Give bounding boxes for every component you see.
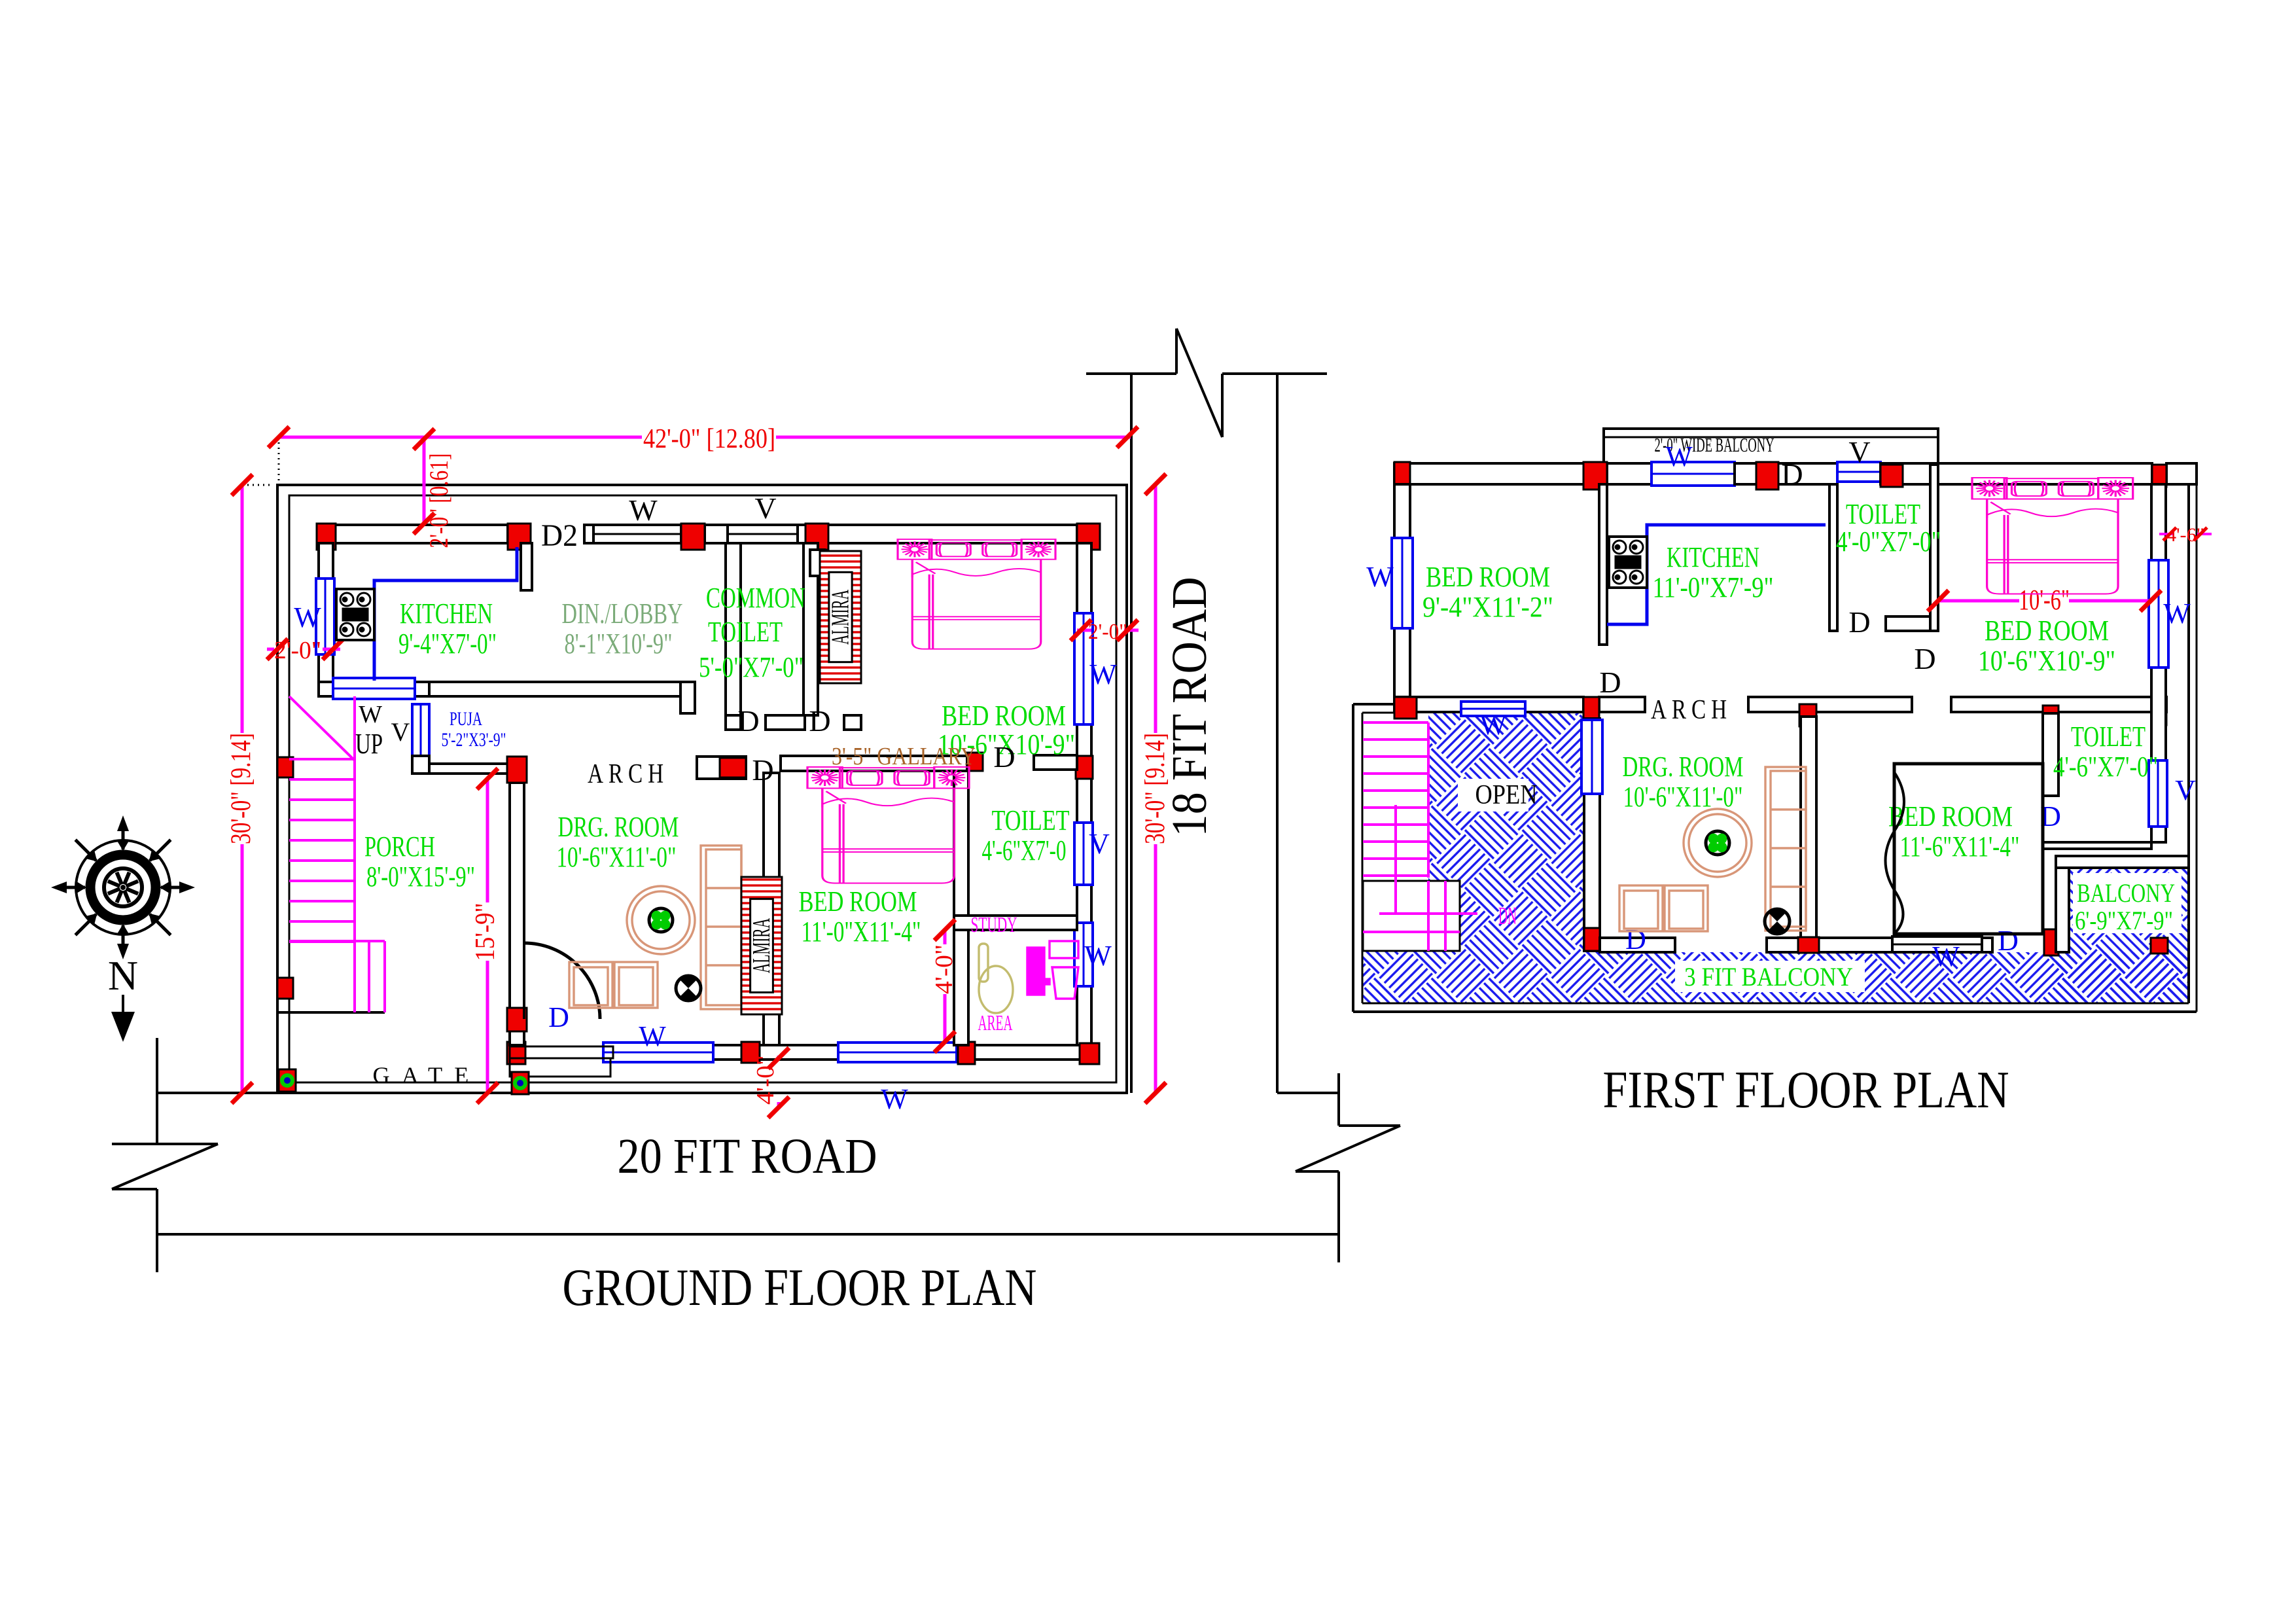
svg-text:9'-4"X7'-0": 9'-4"X7'-0" <box>398 628 497 660</box>
svg-text:4'-0": 4'-0" <box>930 944 958 994</box>
svg-text:D: D <box>993 740 1015 774</box>
svg-text:TOILET: TOILET <box>992 804 1070 836</box>
svg-text:TOILET: TOILET <box>2071 721 2146 753</box>
svg-text:W: W <box>294 601 321 633</box>
svg-text:10'-6": 10'-6" <box>2019 584 2070 616</box>
svg-text:DRG. ROOM: DRG. ROOM <box>1623 751 1744 783</box>
svg-text:KITCHEN: KITCHEN <box>1667 541 1759 573</box>
svg-text:D: D <box>1914 642 1935 675</box>
svg-text:W: W <box>1089 658 1117 690</box>
svg-text:W: W <box>639 1020 666 1052</box>
svg-text:AREA: AREA <box>978 1011 1013 1035</box>
svg-text:D: D <box>737 704 759 738</box>
svg-text:42'-0" [12.80]: 42'-0" [12.80] <box>643 424 775 454</box>
svg-text:BED ROOM: BED ROOM <box>1426 561 1550 593</box>
svg-text:2'-0" [0.61]: 2'-0" [0.61] <box>424 454 453 548</box>
svg-text:W: W <box>1932 940 1960 972</box>
svg-text:2'-0": 2'-0" <box>274 637 321 664</box>
svg-text:10'-6"X10'-9": 10'-6"X10'-9" <box>1978 645 2115 677</box>
svg-text:D: D <box>752 753 773 787</box>
svg-text:BALCONY: BALCONY <box>2077 878 2175 908</box>
svg-text:ARCH: ARCH <box>1651 695 1732 725</box>
svg-text:COMMON: COMMON <box>706 582 805 614</box>
svg-text:5'-2"X3'-9": 5'-2"X3'-9" <box>442 729 506 751</box>
svg-text:DN: DN <box>1498 902 1517 930</box>
svg-text:D: D <box>1599 666 1621 699</box>
svg-text:30'-0" [9.14]: 30'-0" [9.14] <box>226 733 256 844</box>
svg-text:4'-0"X7'-0": 4'-0"X7'-0" <box>1836 526 1941 558</box>
svg-text:D2: D2 <box>541 518 578 553</box>
svg-text:D: D <box>1998 925 2019 957</box>
svg-text:W: W <box>1084 940 1112 972</box>
svg-text:4'-6"X7'-0: 4'-6"X7'-0 <box>982 834 1067 866</box>
svg-text:W: W <box>2163 597 2191 630</box>
svg-text:UP: UP <box>355 728 383 760</box>
svg-text:2'-0": 2'-0" <box>1088 620 1127 644</box>
svg-text:4'-6"X7'-0": 4'-6"X7'-0" <box>2053 751 2158 783</box>
svg-text:9'-4"X11'-2": 9'-4"X11'-2" <box>1422 591 1553 623</box>
svg-text:TOILET: TOILET <box>708 616 783 648</box>
svg-text:D: D <box>1781 457 1803 491</box>
svg-text:W: W <box>1665 440 1693 473</box>
svg-text:3'-5" GALLARY: 3'-5" GALLARY <box>832 743 976 770</box>
svg-text:PUJA: PUJA <box>450 708 482 730</box>
svg-text:8'-0"X15'-9": 8'-0"X15'-9" <box>366 861 475 893</box>
svg-text:8'-1"X10'-9": 8'-1"X10'-9" <box>565 628 673 660</box>
svg-text:FIRST FLOOR PLAN: FIRST FLOOR PLAN <box>1603 1061 2009 1119</box>
svg-text:DIN./LOBBY: DIN./LOBBY <box>562 597 683 630</box>
svg-text:BED ROOM: BED ROOM <box>942 700 1066 732</box>
svg-text:ALMIRA: ALMIRA <box>748 918 775 973</box>
svg-text:KITCHEN: KITCHEN <box>400 597 493 630</box>
svg-text:OPEN: OPEN <box>1475 780 1538 810</box>
svg-text:20 FIT ROAD: 20 FIT ROAD <box>618 1129 877 1184</box>
svg-text:GATE: GATE <box>373 1062 481 1088</box>
svg-text:D: D <box>1848 605 1870 639</box>
svg-text:ALMIRA: ALMIRA <box>827 590 855 645</box>
svg-text:W: W <box>1479 709 1507 741</box>
svg-text:V: V <box>754 491 776 525</box>
svg-text:6'-9"X7'-9": 6'-9"X7'-9" <box>2075 906 2173 935</box>
svg-text:BED ROOM: BED ROOM <box>799 885 917 918</box>
svg-text:W: W <box>1366 561 1394 593</box>
svg-text:10'-6"X11'-0": 10'-6"X11'-0" <box>557 841 677 873</box>
svg-text:10'-6"X11'-0": 10'-6"X11'-0" <box>1623 781 1743 813</box>
svg-text:11'-6"X11'-4": 11'-6"X11'-4" <box>1900 830 2020 863</box>
svg-text:DRG. ROOM: DRG. ROOM <box>558 811 679 843</box>
svg-text:5'-0"X7'-0": 5'-0"X7'-0" <box>699 651 804 683</box>
svg-text:11'-0"X7'-9": 11'-0"X7'-9" <box>1653 571 1774 603</box>
svg-text:STUDY: STUDY <box>971 913 1017 937</box>
svg-text:3 FIT BALCONY: 3 FIT BALCONY <box>1684 962 1853 991</box>
svg-text:15'-9": 15'-9" <box>470 903 501 961</box>
svg-text:GROUND FLOOR PLAN: GROUND FLOOR PLAN <box>563 1259 1037 1317</box>
svg-text:V: V <box>1848 435 1870 469</box>
svg-text:V: V <box>1089 828 1110 860</box>
svg-text:BED ROOM: BED ROOM <box>1985 615 2109 647</box>
svg-text:BED ROOM: BED ROOM <box>1888 800 2013 832</box>
svg-text:PORCH: PORCH <box>364 830 435 863</box>
svg-text:N: N <box>108 952 138 999</box>
svg-text:4'-6": 4'-6" <box>2166 524 2204 546</box>
svg-text:11'-0"X11'-4": 11'-0"X11'-4" <box>802 916 921 948</box>
svg-text:W: W <box>881 1083 908 1115</box>
svg-text:V: V <box>2175 774 2196 806</box>
svg-text:D: D <box>548 1001 569 1033</box>
svg-text:18 FIT ROAD: 18 FIT ROAD <box>1162 577 1217 837</box>
svg-text:W: W <box>359 701 382 728</box>
svg-text:ARCH: ARCH <box>588 759 669 789</box>
svg-text:V: V <box>391 717 410 747</box>
svg-text:D: D <box>809 704 830 738</box>
svg-text:4'-0": 4'-0" <box>752 1055 779 1105</box>
svg-text:W: W <box>629 493 658 527</box>
